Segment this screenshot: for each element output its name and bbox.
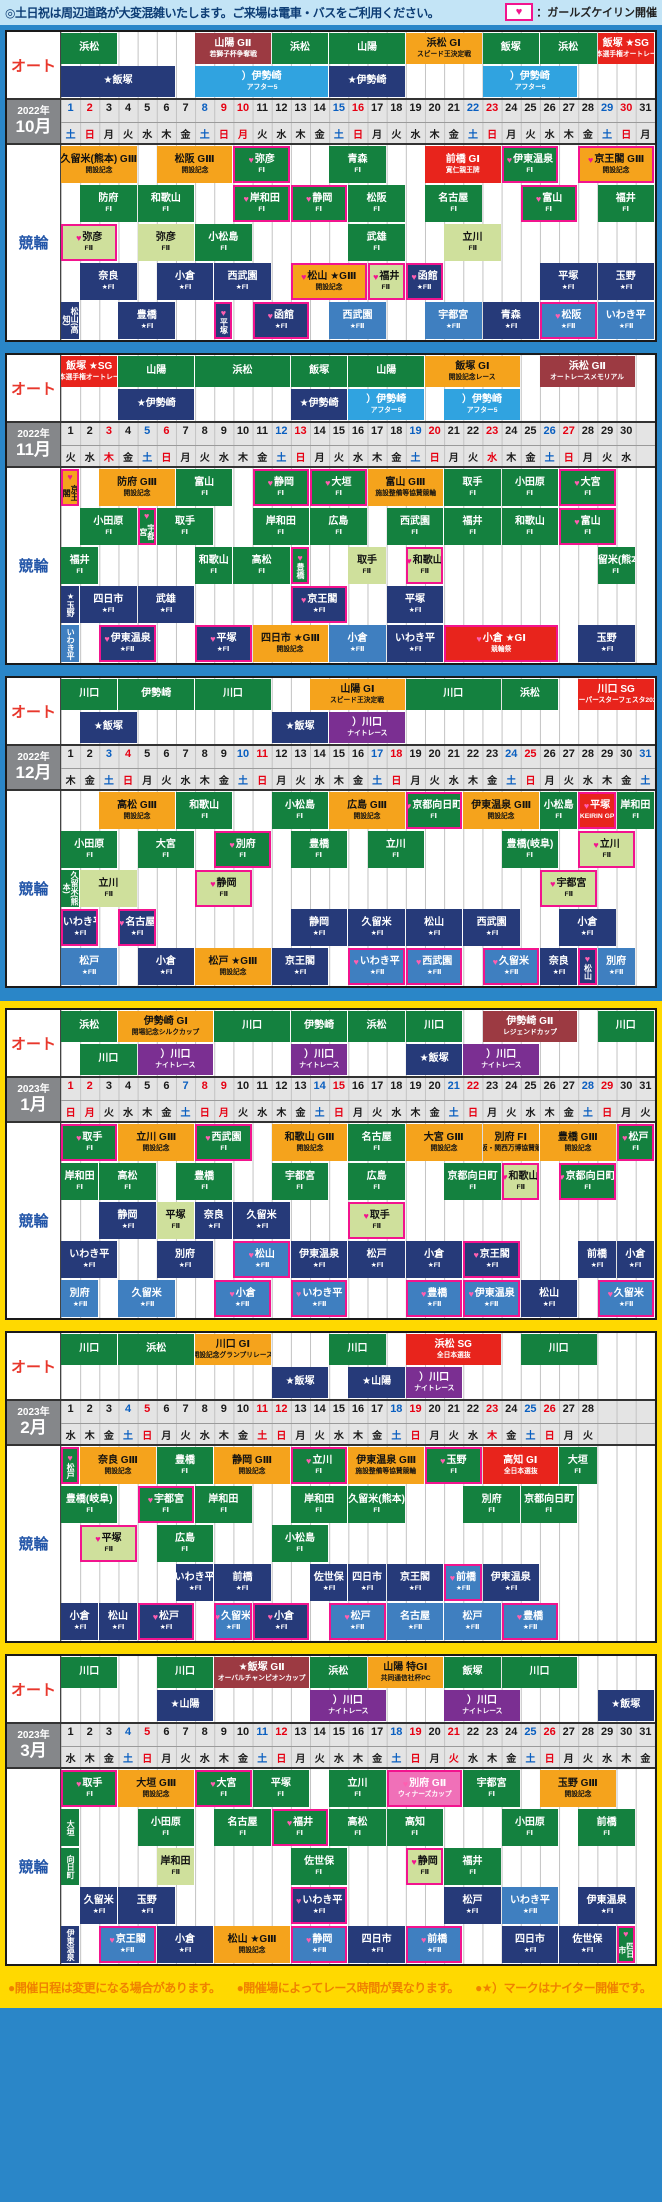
event-grade: 若獅子杯争奪戦 <box>209 50 256 57</box>
event-grade: 開設記念 <box>104 1467 131 1474</box>
event-title: ♥京王閣 <box>473 1250 509 1261</box>
day-number: 23 <box>483 746 502 768</box>
event-grade: ★FⅠ <box>581 929 594 936</box>
day-number: 7 <box>176 423 195 445</box>
event-title: 飯塚 ★SG <box>603 39 649 50</box>
event-title: 浜松 <box>367 1021 387 1032</box>
event-grade: ナイトレース <box>347 729 387 736</box>
day-weekday: 日 <box>253 768 272 789</box>
girls-heart-icon: ♥ <box>421 1290 426 1299</box>
date-cell: 30水 <box>617 423 636 466</box>
day-weekday: 日 <box>483 122 502 143</box>
girls-heart-icon: ♥ <box>301 596 306 605</box>
event-grade: FⅡ <box>468 244 477 251</box>
day-number: 20 <box>425 1724 444 1746</box>
event-title: 飯塚 <box>309 366 329 377</box>
event-block: ★飯塚 <box>272 712 328 743</box>
event-block: ♥松戸★FⅡ <box>329 1603 385 1640</box>
date-cell: 23月 <box>483 1078 502 1121</box>
event-title: ♥静岡 <box>210 879 236 890</box>
event-title: 小松島 <box>544 801 574 812</box>
event-title: ♥静岡 <box>268 478 294 489</box>
event-title: 浜松 <box>233 366 253 377</box>
event-block: 飯塚 ★SG日本選手権オートレース <box>598 33 654 64</box>
calendar-months-2022: オート浜松山陽 GⅡ若獅子杯争奪戦浜松山陽浜松 GⅠスピード王決定戦飯塚浜松飯塚… <box>0 30 662 988</box>
girls-heart-icon: ♥ <box>559 1173 564 1182</box>
day-number: 27 <box>559 100 578 122</box>
event-title: 松戸 <box>367 1250 387 1261</box>
event-block: 武雄FⅠ <box>348 224 404 261</box>
day-weekday: 日 <box>272 1423 291 1444</box>
date-cell: 17木 <box>368 423 387 466</box>
day-number: 16 <box>348 1724 367 1746</box>
girls-heart-icon: ♥ <box>76 1780 81 1789</box>
event-grade: アフター5 <box>467 406 498 413</box>
day-weekday: 木 <box>559 122 578 143</box>
date-cell: 5土 <box>138 423 157 466</box>
day-weekday: 金 <box>253 445 272 466</box>
day-weekday: 日 <box>540 1746 559 1767</box>
day-weekday: 金 <box>291 1100 310 1121</box>
day-weekday: 金 <box>617 768 636 789</box>
event-grade: FⅠ <box>297 1545 304 1552</box>
event-title: 川口 <box>347 1344 367 1355</box>
day-weekday: 金 <box>559 1100 578 1121</box>
event-grade: FⅠ <box>527 489 534 496</box>
girls-heart-icon: ♥ <box>287 1819 292 1828</box>
day-number: 23 <box>483 1724 502 1746</box>
day-weekday: 月 <box>157 1423 176 1444</box>
event-grade: FⅠ <box>392 851 399 858</box>
event-title: ♥和歌山 <box>502 1172 538 1183</box>
event-title: 高松 GⅢ <box>117 801 157 812</box>
day-number: 10 <box>233 1724 252 1746</box>
day-weekday: 月 <box>540 768 559 789</box>
event-title: 松山 ★GⅢ <box>228 1935 277 1946</box>
day-number: 29 <box>598 1078 617 1100</box>
event-block: 松戸★FⅡ <box>61 948 117 985</box>
event-block: ）川口ナイトレース <box>291 1044 347 1075</box>
day-weekday: 土 <box>578 1100 597 1121</box>
day-number: 17 <box>368 1401 387 1423</box>
day-number: 7 <box>176 100 195 122</box>
event-title: 松山(高知) <box>62 303 78 338</box>
day-weekday: 木 <box>61 768 80 789</box>
event-block: 飯塚 GⅠ開設記念レース <box>425 356 520 387</box>
event-title: いわき平 <box>510 1896 550 1907</box>
footer-note: ●開催場によってレース時間が異なります。 <box>237 1979 460 1996</box>
event-title: 岸和田 <box>266 517 296 528</box>
event-block: ♥いわき平★FⅠ <box>291 1887 347 1924</box>
calendar-months-2023: オート浜松伊勢崎 GⅠ開場記念シルクカップ川口伊勢崎浜松川口伊勢崎 GⅡレジェン… <box>0 1008 662 1966</box>
day-number: 18 <box>387 423 406 445</box>
event-block: 広島FⅠ <box>157 1525 213 1562</box>
event-title: ♥平塚 <box>210 634 236 645</box>
event-title: 浜松 <box>290 43 310 54</box>
event-title: ♥小倉 <box>229 1289 255 1300</box>
event-grade: ★FⅡ <box>417 283 432 290</box>
event-grade: FⅠ <box>201 812 208 819</box>
auto-event-grid: 川口浜松川口 GⅠ開設記念グランプリレース川口浜松 SG全日本選抜川口★飯塚★山… <box>61 1333 655 1399</box>
event-block: ）川口ナイトレース <box>310 1690 386 1721</box>
day-number: 14 <box>310 1724 329 1746</box>
date-cell: 16日 <box>348 100 367 143</box>
date-cell: 29日 <box>598 1078 617 1121</box>
event-grade: ★FⅠ <box>313 1907 326 1914</box>
day-weekday: 水 <box>61 1423 80 1444</box>
event-grade: FⅠ <box>450 1467 457 1474</box>
event-title: 伊東温泉 <box>66 1929 74 1961</box>
date-cell: 29火 <box>598 423 617 466</box>
month-panel: オート飯塚 ★SG日本選手権オートレース山陽浜松飯塚山陽飯塚 GⅠ開設記念レース… <box>5 353 657 665</box>
event-title: 川口 <box>79 689 99 700</box>
event-title: 山陽 GⅡ <box>214 39 251 50</box>
event-title: ）川口 <box>467 1696 497 1707</box>
event-grade: ★FⅠ <box>102 283 115 290</box>
event-title: 福井 <box>70 556 90 567</box>
event-grade: FⅠ <box>527 528 534 535</box>
girls-heart-icon: ♥ <box>353 958 358 967</box>
event-grade: KEIRIN GP <box>580 812 615 819</box>
day-number: 28 <box>578 423 597 445</box>
date-cell: 11金 <box>253 423 272 466</box>
event-grade: FⅠ <box>584 1183 591 1190</box>
event-title: 大宮 GⅢ <box>424 1133 464 1144</box>
event-grade: ★FⅠ <box>504 1584 517 1591</box>
event-grade: 共同通信社杯PC <box>380 1674 430 1681</box>
event-title: ♥豊橋 <box>421 1289 447 1300</box>
event-block: 立川FⅠ <box>368 831 424 868</box>
event-title: ♥福井 <box>373 272 399 283</box>
event-block: 松阪FⅠ <box>348 185 404 222</box>
event-grade: ★FⅠ <box>629 1261 642 1268</box>
girls-heart-icon: ♥ <box>411 273 416 282</box>
day-weekday: 木 <box>368 445 387 466</box>
event-title: ♥小倉 ★GⅠ <box>476 634 526 645</box>
event-block: ♥和歌山FⅡ <box>502 1163 539 1200</box>
date-cell: 11土 <box>253 1401 272 1444</box>
date-cell: 2木 <box>80 1724 99 1767</box>
event-block: ）川口ナイトレース <box>406 1367 462 1398</box>
day-number: 28 <box>578 746 597 768</box>
event-grade: 日本選手権オートレース <box>598 50 654 57</box>
day-number: 2 <box>80 746 99 768</box>
event-block: 豊橋(岐阜)FⅠ <box>61 1486 117 1523</box>
event-title: ）伊勢崎 <box>242 72 282 83</box>
event-block: 伊東温泉★FⅠ <box>483 1564 539 1601</box>
day-number: 17 <box>368 1078 387 1100</box>
event-grade: FⅠ <box>469 1183 476 1190</box>
event-block: いわき平★FⅡ <box>598 302 654 339</box>
day-weekday: 金 <box>214 768 233 789</box>
date-cell: 9木 <box>214 1724 233 1767</box>
event-title: 久留米 <box>362 918 392 929</box>
date-cell: 23木 <box>483 1724 502 1767</box>
event-grade: オーバルチャンピオンカップ <box>218 1674 306 1681</box>
event-title: 平塚 <box>558 272 578 283</box>
event-block: 飯塚 ★SG日本選手権オートレース <box>61 356 117 387</box>
date-section: 2023年3月1水2木3金4土5日6月7火8水9木10金11土12日13月14火… <box>7 1724 655 1769</box>
event-title: 伊東温泉 GⅢ <box>471 801 531 812</box>
girls-heart-icon: ♥ <box>588 156 593 165</box>
event-title: 小田原 <box>515 1818 545 1829</box>
event-grade: ★FⅠ <box>121 1222 134 1229</box>
day-number: 25 <box>521 100 540 122</box>
event-grade: ★FⅠ <box>236 1584 249 1591</box>
event-block: ♥松阪★FⅡ <box>540 302 596 339</box>
event-title: 別府 FⅠ <box>494 1133 527 1144</box>
event-block: ♥静岡★FⅡ <box>291 1926 347 1963</box>
event-title: 取手 <box>175 517 195 528</box>
event-block: いわき平★FⅠ <box>176 1564 213 1601</box>
event-grade: ★FⅠ <box>294 968 307 975</box>
event-title: 久留米(熊本) GⅢ <box>61 155 137 166</box>
event-block: 久留米(熊本)FⅠ <box>598 547 635 584</box>
event-title: ♥弥彦 <box>76 233 102 244</box>
day-number: 22 <box>463 1078 482 1100</box>
date-cell: 28火 <box>578 1401 597 1444</box>
day-weekday: 水 <box>617 445 636 466</box>
event-grade: FⅠ <box>182 528 189 535</box>
event-block: 小倉★FⅠ <box>157 1926 213 1963</box>
girls-heart-icon: ♥ <box>582 954 591 964</box>
event-grade: ★FⅡ <box>350 322 365 329</box>
day-weekday: 火 <box>578 1746 597 1767</box>
event-title: 前橋 <box>597 1818 617 1829</box>
date-cell: 20月 <box>425 1724 444 1767</box>
event-title: 西武園 <box>228 272 258 283</box>
auto-event-grid: 浜松伊勢崎 GⅠ開場記念シルクカップ川口伊勢崎浜松川口伊勢崎 GⅡレジェンドカッ… <box>61 1010 655 1076</box>
day-weekday: 日 <box>348 122 367 143</box>
day-number: 26 <box>540 100 559 122</box>
day-weekday: 月 <box>157 1746 176 1767</box>
girls-heart-icon: ♥ <box>229 1290 234 1299</box>
event-title: ♥久留米 <box>608 1289 644 1300</box>
event-block: 小倉★FⅠ <box>617 1241 654 1278</box>
event-block: ♥京都向日町FⅠ <box>559 1163 615 1200</box>
event-block: ★飯塚 GⅡオーバルチャンピオンカップ <box>214 1657 309 1688</box>
day-number <box>636 1401 655 1423</box>
event-block: 高松FⅠ <box>329 1809 385 1846</box>
date-cell: 26土 <box>540 423 559 466</box>
event-grade: ★FⅠ <box>552 968 565 975</box>
day-number: 13 <box>291 1401 310 1423</box>
day-number: 19 <box>406 1724 425 1746</box>
auto-event-grid: 飯塚 ★SG日本選手権オートレース山陽浜松飯塚山陽飯塚 GⅠ開設記念レース浜松 … <box>61 355 655 421</box>
date-section: 2022年12月1木2金3土4日5月6火7水8木9金10土11日12月13火14… <box>7 746 655 791</box>
girls-heart-icon: ♥ <box>65 1453 74 1463</box>
date-cell: 25火 <box>521 100 540 143</box>
event-title: ♥久留米 <box>493 957 529 968</box>
year-text: 2023年 <box>17 1730 49 1742</box>
event-grade: FⅠ <box>239 1829 246 1836</box>
event-title: 豊橋 GⅢ <box>558 1133 598 1144</box>
day-number: 21 <box>444 1401 463 1423</box>
event-grade: FⅠ <box>86 1790 93 1797</box>
date-cell: 7火 <box>176 1724 195 1767</box>
event-grade: ★FⅠ <box>236 283 249 290</box>
event-block: ♥大宮FⅠ <box>559 469 615 506</box>
event-title: 松山 <box>108 1612 128 1623</box>
event-title: ♥京王閣 GⅢ <box>588 155 644 166</box>
event-grade: ★FⅠ <box>485 1261 498 1268</box>
event-title: 京都向日町 <box>447 1172 497 1183</box>
event-title: 小倉 <box>424 1250 444 1261</box>
date-cell: 17金 <box>368 1724 387 1767</box>
event-block: 和歌山FⅠ <box>138 185 194 222</box>
date-section: 2023年2月1水2木3金4土5日6月7火8水9木10金11土12日13月14火… <box>7 1401 655 1446</box>
date-grid: 1水2木3金4土5日6月7火8水9木10金11土12日13月14火15水16木1… <box>61 1724 655 1767</box>
event-title: 宇都宮 <box>285 1172 315 1183</box>
day-weekday: 日 <box>617 122 636 143</box>
date-cell: 26木 <box>540 1078 559 1121</box>
event-title: ♥前橋 <box>421 1935 447 1946</box>
day-weekday: 日 <box>138 1746 157 1767</box>
event-title: 伊勢崎 <box>141 689 171 700</box>
event-title: 浜松 <box>146 1344 166 1355</box>
event-title: 川口 <box>424 1021 444 1032</box>
event-block: 別府★FⅡ <box>598 948 635 985</box>
event-block: 広島FⅠ <box>348 1163 404 1200</box>
event-title: 松阪 GⅢ <box>175 155 215 166</box>
event-grade: ★FⅡ <box>618 1300 633 1307</box>
event-title: ♥伊東温泉 <box>507 155 553 166</box>
date-cell: 30月 <box>617 1078 636 1121</box>
girls-heart-icon: ♥ <box>416 958 421 967</box>
date-cell: 13月 <box>291 1401 310 1444</box>
event-block: ♥立川FⅡ <box>578 831 634 868</box>
event-title: 別府 <box>606 957 626 968</box>
event-block: 玉野★FⅠ <box>598 263 654 300</box>
event-title: 松阪 <box>367 194 387 205</box>
date-cell: 1水 <box>61 1724 80 1767</box>
day-weekday: 木 <box>329 768 348 789</box>
event-block: 豊橋 GⅢ開設記念 <box>540 1124 616 1161</box>
date-cell <box>598 1401 617 1444</box>
date-cell: 20日 <box>425 423 444 466</box>
event-title: いわき平 <box>606 311 646 322</box>
event-grade: ナイトレース <box>481 1061 521 1068</box>
event-title: 川口 <box>530 1667 550 1678</box>
event-grade: FⅡ <box>372 1222 381 1229</box>
date-cell: 11水 <box>253 1078 272 1121</box>
event-block: 富山FⅠ <box>176 469 232 506</box>
event-block: 浜松 <box>61 1011 117 1042</box>
event-grade: ★FⅠ <box>600 1907 613 1914</box>
day-number: 13 <box>291 1078 310 1100</box>
event-title: 和歌山 <box>189 801 219 812</box>
keirin-section: 競輪♥京王閣防府 GⅢ開設記念富山FⅠ♥静岡FⅠ♥大垣FⅠ富山 GⅢ施設整備等協… <box>7 468 655 663</box>
event-block: 小倉★FⅠ <box>559 909 615 946</box>
event-grade: ★FⅠ <box>409 1584 422 1591</box>
date-cell: 22木 <box>463 746 482 789</box>
event-block: ）伊勢崎アフター5 <box>444 389 520 420</box>
event-grade: FⅠ <box>412 1829 419 1836</box>
event-block: 伊東温泉★FⅠ <box>291 1241 347 1278</box>
day-number: 12 <box>272 100 291 122</box>
event-block: ♥弥彦FⅠ <box>233 146 289 183</box>
auto-side-label: オート <box>7 1010 61 1076</box>
event-grade: FⅠ <box>316 1467 323 1474</box>
keirin-event-grid: ♥松戸奈良 GⅢ開設記念豊橋FⅠ静岡 GⅢ開設記念♥立川FⅠ伊東温泉 GⅢ施設整… <box>61 1446 655 1641</box>
day-number: 15 <box>329 423 348 445</box>
event-title: ♥松戸 <box>153 1612 179 1623</box>
event-grade: FⅠ <box>297 1183 304 1190</box>
day-weekday: 月 <box>99 122 118 143</box>
date-cell: 7火 <box>176 1401 195 1444</box>
event-block: 富山 GⅢ施設整備等協賛競輪 <box>368 469 444 506</box>
day-number: 12 <box>272 423 291 445</box>
day-weekday: 木 <box>348 1746 367 1767</box>
day-weekday: 火 <box>329 445 348 466</box>
event-grade: ★FⅡ <box>254 1261 269 1268</box>
day-weekday: 水 <box>138 122 157 143</box>
event-block: ♥名古屋★FⅠ <box>118 909 155 946</box>
date-cell: 2月 <box>80 1078 99 1121</box>
event-block: ♥久留米★FⅡ <box>214 1603 251 1640</box>
event-grade: 開設記念 <box>124 489 151 496</box>
event-title: 小倉 <box>347 634 367 645</box>
girls-heart-icon: ♥ <box>555 312 560 321</box>
day-number: 30 <box>617 100 636 122</box>
girls-heart-icon: ♥ <box>306 195 311 204</box>
event-block: ♥京王閣★FⅠ <box>291 586 347 623</box>
event-grade: 開設記念 <box>354 812 381 819</box>
date-cell: 2金 <box>80 746 99 789</box>
event-title: 奈良 <box>98 272 118 283</box>
girls-heart-icon: ♥ <box>473 1251 478 1260</box>
girls-heart-icon: ♥ <box>550 880 555 889</box>
day-weekday: 火 <box>444 1746 463 1767</box>
event-block: 大宮 GⅢ開設記念 <box>406 1124 482 1161</box>
girls-keirin-legend: ♥ ：ガールズケイリン開催 <box>505 3 657 21</box>
day-weekday: 月 <box>444 445 463 466</box>
event-block: 松戸 ★GⅢ開設記念 <box>195 948 271 985</box>
event-block: 久留米★FⅡ <box>118 1280 174 1317</box>
day-number: 24 <box>502 746 521 768</box>
event-title: 飯塚 <box>462 1667 482 1678</box>
day-weekday: 火 <box>636 1100 655 1121</box>
event-title: 玉野 <box>597 634 617 645</box>
event-title: 静岡 <box>118 1211 138 1222</box>
event-block: 久留米(熊本) <box>61 870 79 907</box>
event-title: ★飯塚 <box>286 722 315 733</box>
date-cell: 31土 <box>636 746 655 789</box>
event-block: 浜松 SG全日本選抜 <box>406 1334 501 1365</box>
year-text: 2023年 <box>17 1407 49 1419</box>
event-title: いわき平 <box>176 1573 213 1584</box>
event-title: 広島 <box>328 517 348 528</box>
date-cell: 2水 <box>80 423 99 466</box>
event-title: 高知 GⅠ <box>503 1456 537 1467</box>
event-block: 川口 <box>157 1657 213 1688</box>
event-block: 小田原FⅠ <box>502 1809 558 1846</box>
event-title: ♥宇都宮 <box>139 511 155 542</box>
date-cell: 25土 <box>521 1724 540 1767</box>
event-title: 佐世保 <box>314 1573 344 1584</box>
day-number: 27 <box>559 423 578 445</box>
date-cell: 17金 <box>368 1401 387 1444</box>
event-title: 西武園 <box>342 311 372 322</box>
day-number: 8 <box>195 423 214 445</box>
event-block: 福井FⅠ <box>444 1848 500 1885</box>
day-weekday: 月 <box>291 1746 310 1767</box>
event-grade: FⅠ <box>163 1829 170 1836</box>
event-block: 岸和田FⅠ <box>195 1486 251 1523</box>
event-grade: FⅠ <box>373 205 380 212</box>
date-cell <box>636 1401 655 1444</box>
event-title: 岸和田 <box>620 801 650 812</box>
